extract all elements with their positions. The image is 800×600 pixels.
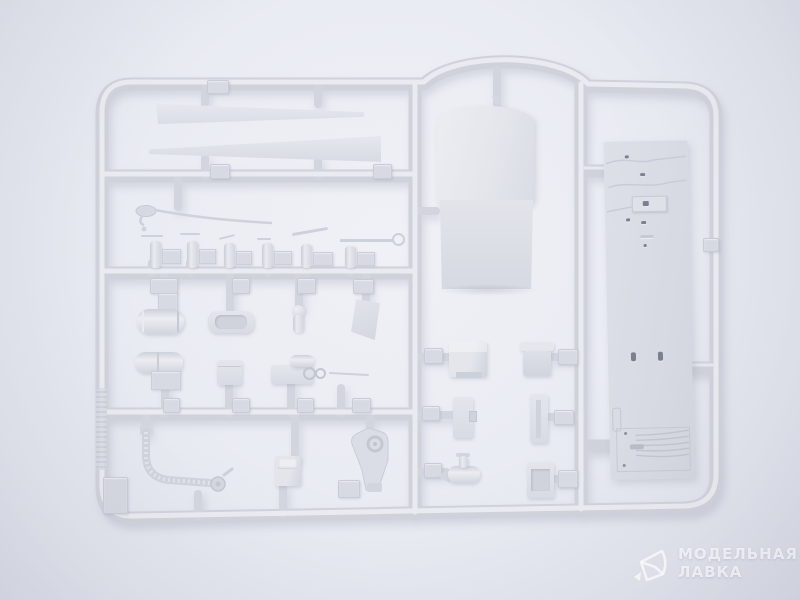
runner-tab: [554, 410, 574, 425]
watermark-line1: МОДЕЛЬНАЯ: [678, 545, 798, 563]
runner-tab: [558, 349, 578, 365]
runner-tab: [297, 278, 316, 294]
runner-tab: [232, 398, 250, 413]
pivot-bracket: [348, 426, 394, 496]
sprue-letter-tag: [103, 477, 128, 514]
runner-tab: [424, 348, 443, 364]
runner-tab: [558, 470, 578, 488]
runner-tab: [422, 406, 440, 421]
runner-tab: [232, 278, 250, 294]
panel-cable-engraving: [615, 426, 692, 474]
cab-front-panel: [440, 200, 533, 289]
runner-tab: [352, 398, 371, 413]
exhaust-pipe: [128, 425, 240, 503]
runner-tab: [373, 164, 392, 179]
runner-tab: [703, 238, 719, 252]
mold-text-strip: [96, 388, 107, 470]
sprue-photo: МОДЕЛЬНАЯ ЛАВКА: [0, 0, 800, 600]
runner-tab: [353, 279, 374, 294]
runner-tab: [163, 398, 180, 413]
watermark-line2: ЛАВКА: [678, 563, 798, 581]
runner-tab: [297, 398, 314, 413]
runner-tab: [207, 80, 229, 94]
runner-tab: [150, 278, 178, 294]
crystal-logo-icon: [630, 545, 674, 589]
panel-raised-box: [632, 196, 667, 213]
runner-tab: [210, 164, 230, 179]
watermark: МОДЕЛЬНАЯ ЛАВКА: [630, 543, 800, 595]
deck-panel: [603, 140, 694, 480]
